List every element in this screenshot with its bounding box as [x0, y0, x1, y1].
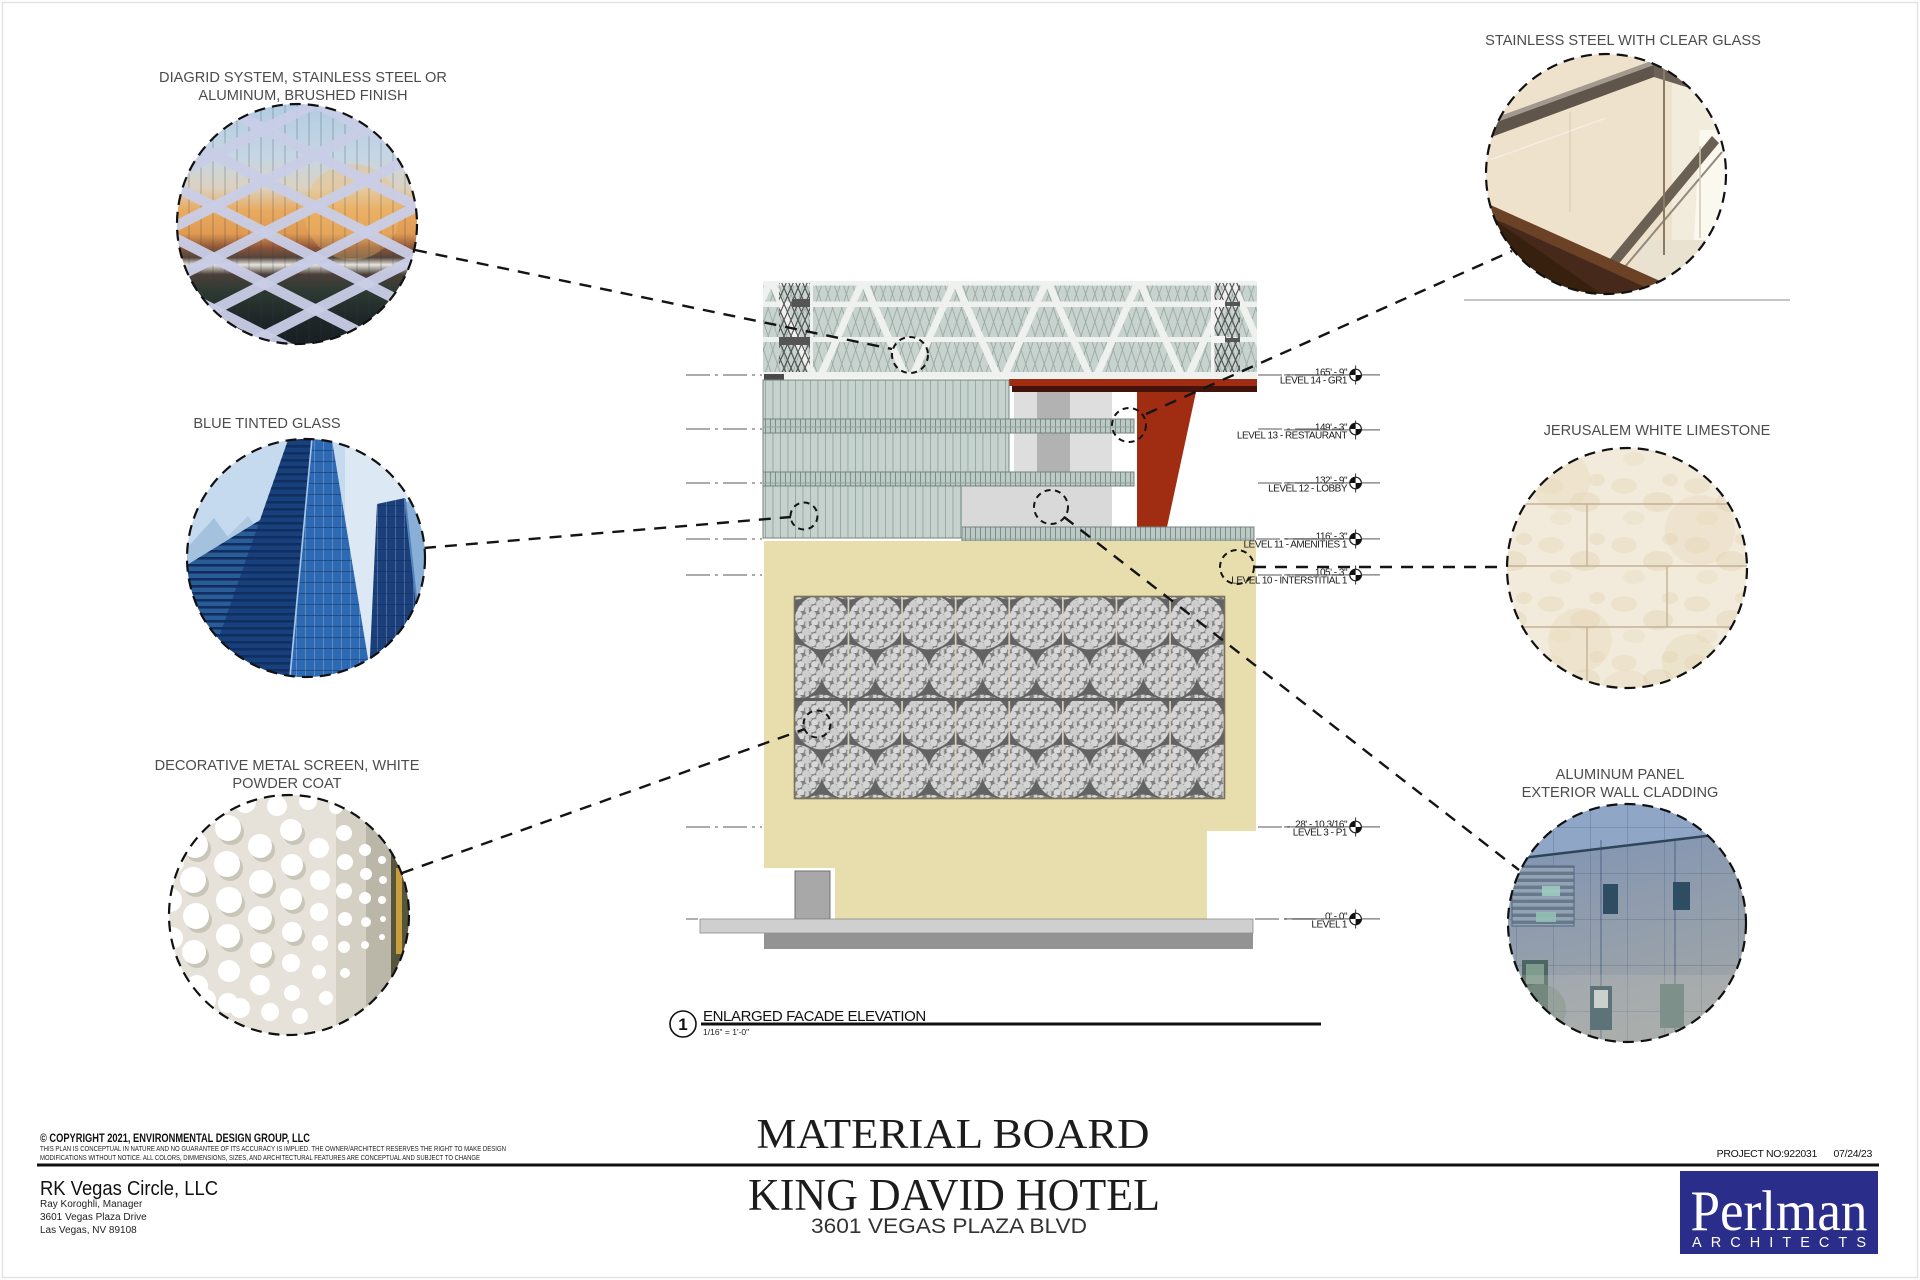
svg-text:PROJECT NO:922031: PROJECT NO:922031	[1717, 1148, 1818, 1160]
svg-text:Perlman: Perlman	[1691, 1180, 1868, 1243]
svg-text:EXTERIOR WALL CLADDING: EXTERIOR WALL CLADDING	[1522, 785, 1719, 801]
svg-text:1/16" = 1'-0": 1/16" = 1'-0"	[703, 1027, 749, 1037]
svg-text:JERUSALEM WHITE LIMESTONE: JERUSALEM WHITE LIMESTONE	[1544, 423, 1771, 439]
svg-text:07/24/23: 07/24/23	[1834, 1148, 1873, 1160]
svg-text:1: 1	[678, 1015, 687, 1034]
svg-text:LEVEL 11 - AMENITIES 1: LEVEL 11 - AMENITIES 1	[1244, 539, 1348, 550]
svg-text:LEVEL 12 - LOBBY: LEVEL 12 - LOBBY	[1268, 483, 1348, 494]
svg-text:KING DAVID HOTEL: KING DAVID HOTEL	[748, 1170, 1160, 1220]
svg-text:LEVEL 10 - INTERSTITIAL 1: LEVEL 10 - INTERSTITIAL 1	[1231, 575, 1348, 586]
svg-text:LEVEL 3 - P1: LEVEL 3 - P1	[1293, 827, 1348, 838]
svg-text:3601 Vegas Plaza Drive: 3601 Vegas Plaza Drive	[40, 1212, 147, 1223]
svg-text:BLUE TINTED GLASS: BLUE TINTED GLASS	[193, 416, 341, 432]
svg-text:RK Vegas Circle, LLC: RK Vegas Circle, LLC	[40, 1178, 218, 1200]
svg-text:ENLARGED FACADE ELEVATION: ENLARGED FACADE ELEVATION	[703, 1008, 926, 1025]
svg-text:LEVEL 1: LEVEL 1	[1311, 919, 1348, 930]
svg-text:3601 VEGAS PLAZA BLVD: 3601 VEGAS PLAZA BLVD	[811, 1215, 1087, 1238]
svg-text:LEVEL 14 - GR1: LEVEL 14 - GR1	[1280, 375, 1348, 386]
svg-text:ALUMINUM, BRUSHED FINISH: ALUMINUM, BRUSHED FINISH	[198, 88, 407, 104]
svg-text:POWDER COAT: POWDER COAT	[232, 776, 341, 792]
svg-text:THIS PLAN IS CONCEPTUAL IN NAT: THIS PLAN IS CONCEPTUAL IN NATURE AND NO…	[40, 1144, 506, 1153]
svg-text:DIAGRID SYSTEM, STAINLESS STEE: DIAGRID SYSTEM, STAINLESS STEEL OR	[159, 70, 447, 86]
svg-text:STAINLESS STEEL WITH CLEAR GLA: STAINLESS STEEL WITH CLEAR GLASS	[1485, 33, 1761, 49]
svg-text:Ray Koroghli, Manager: Ray Koroghli, Manager	[40, 1199, 143, 1210]
svg-text:LEVEL 13 - RESTAURANT: LEVEL 13 - RESTAURANT	[1237, 430, 1347, 441]
svg-text:DECORATIVE METAL SCREEN, WHITE: DECORATIVE METAL SCREEN, WHITE	[155, 758, 420, 774]
svg-text:Las Vegas, NV 89108: Las Vegas, NV 89108	[40, 1225, 137, 1236]
svg-text:ALUMINUM PANEL: ALUMINUM PANEL	[1556, 767, 1685, 783]
svg-text:MATERIAL BOARD: MATERIAL BOARD	[757, 1112, 1150, 1158]
svg-text:MODIFICATIONS WITHOUT NOTICE.: MODIFICATIONS WITHOUT NOTICE. ALL COLORS…	[40, 1153, 480, 1162]
